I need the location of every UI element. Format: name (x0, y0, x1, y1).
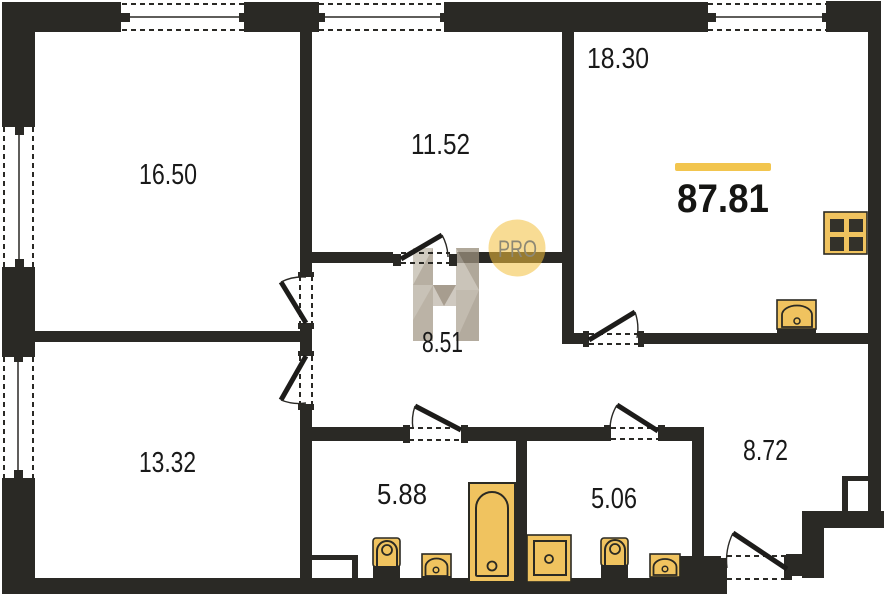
svg-text:18.30: 18.30 (587, 43, 649, 75)
svg-text:16.50: 16.50 (139, 159, 197, 191)
svg-text:8.72: 8.72 (743, 435, 788, 467)
svg-text:PRO: PRO (498, 236, 537, 263)
svg-text:13.32: 13.32 (139, 447, 196, 479)
svg-text:5.06: 5.06 (591, 483, 637, 515)
svg-text:11.52: 11.52 (411, 129, 470, 161)
svg-text:5.88: 5.88 (377, 479, 427, 511)
svg-text:87.81: 87.81 (677, 177, 769, 221)
svg-text:8.51: 8.51 (422, 327, 463, 359)
